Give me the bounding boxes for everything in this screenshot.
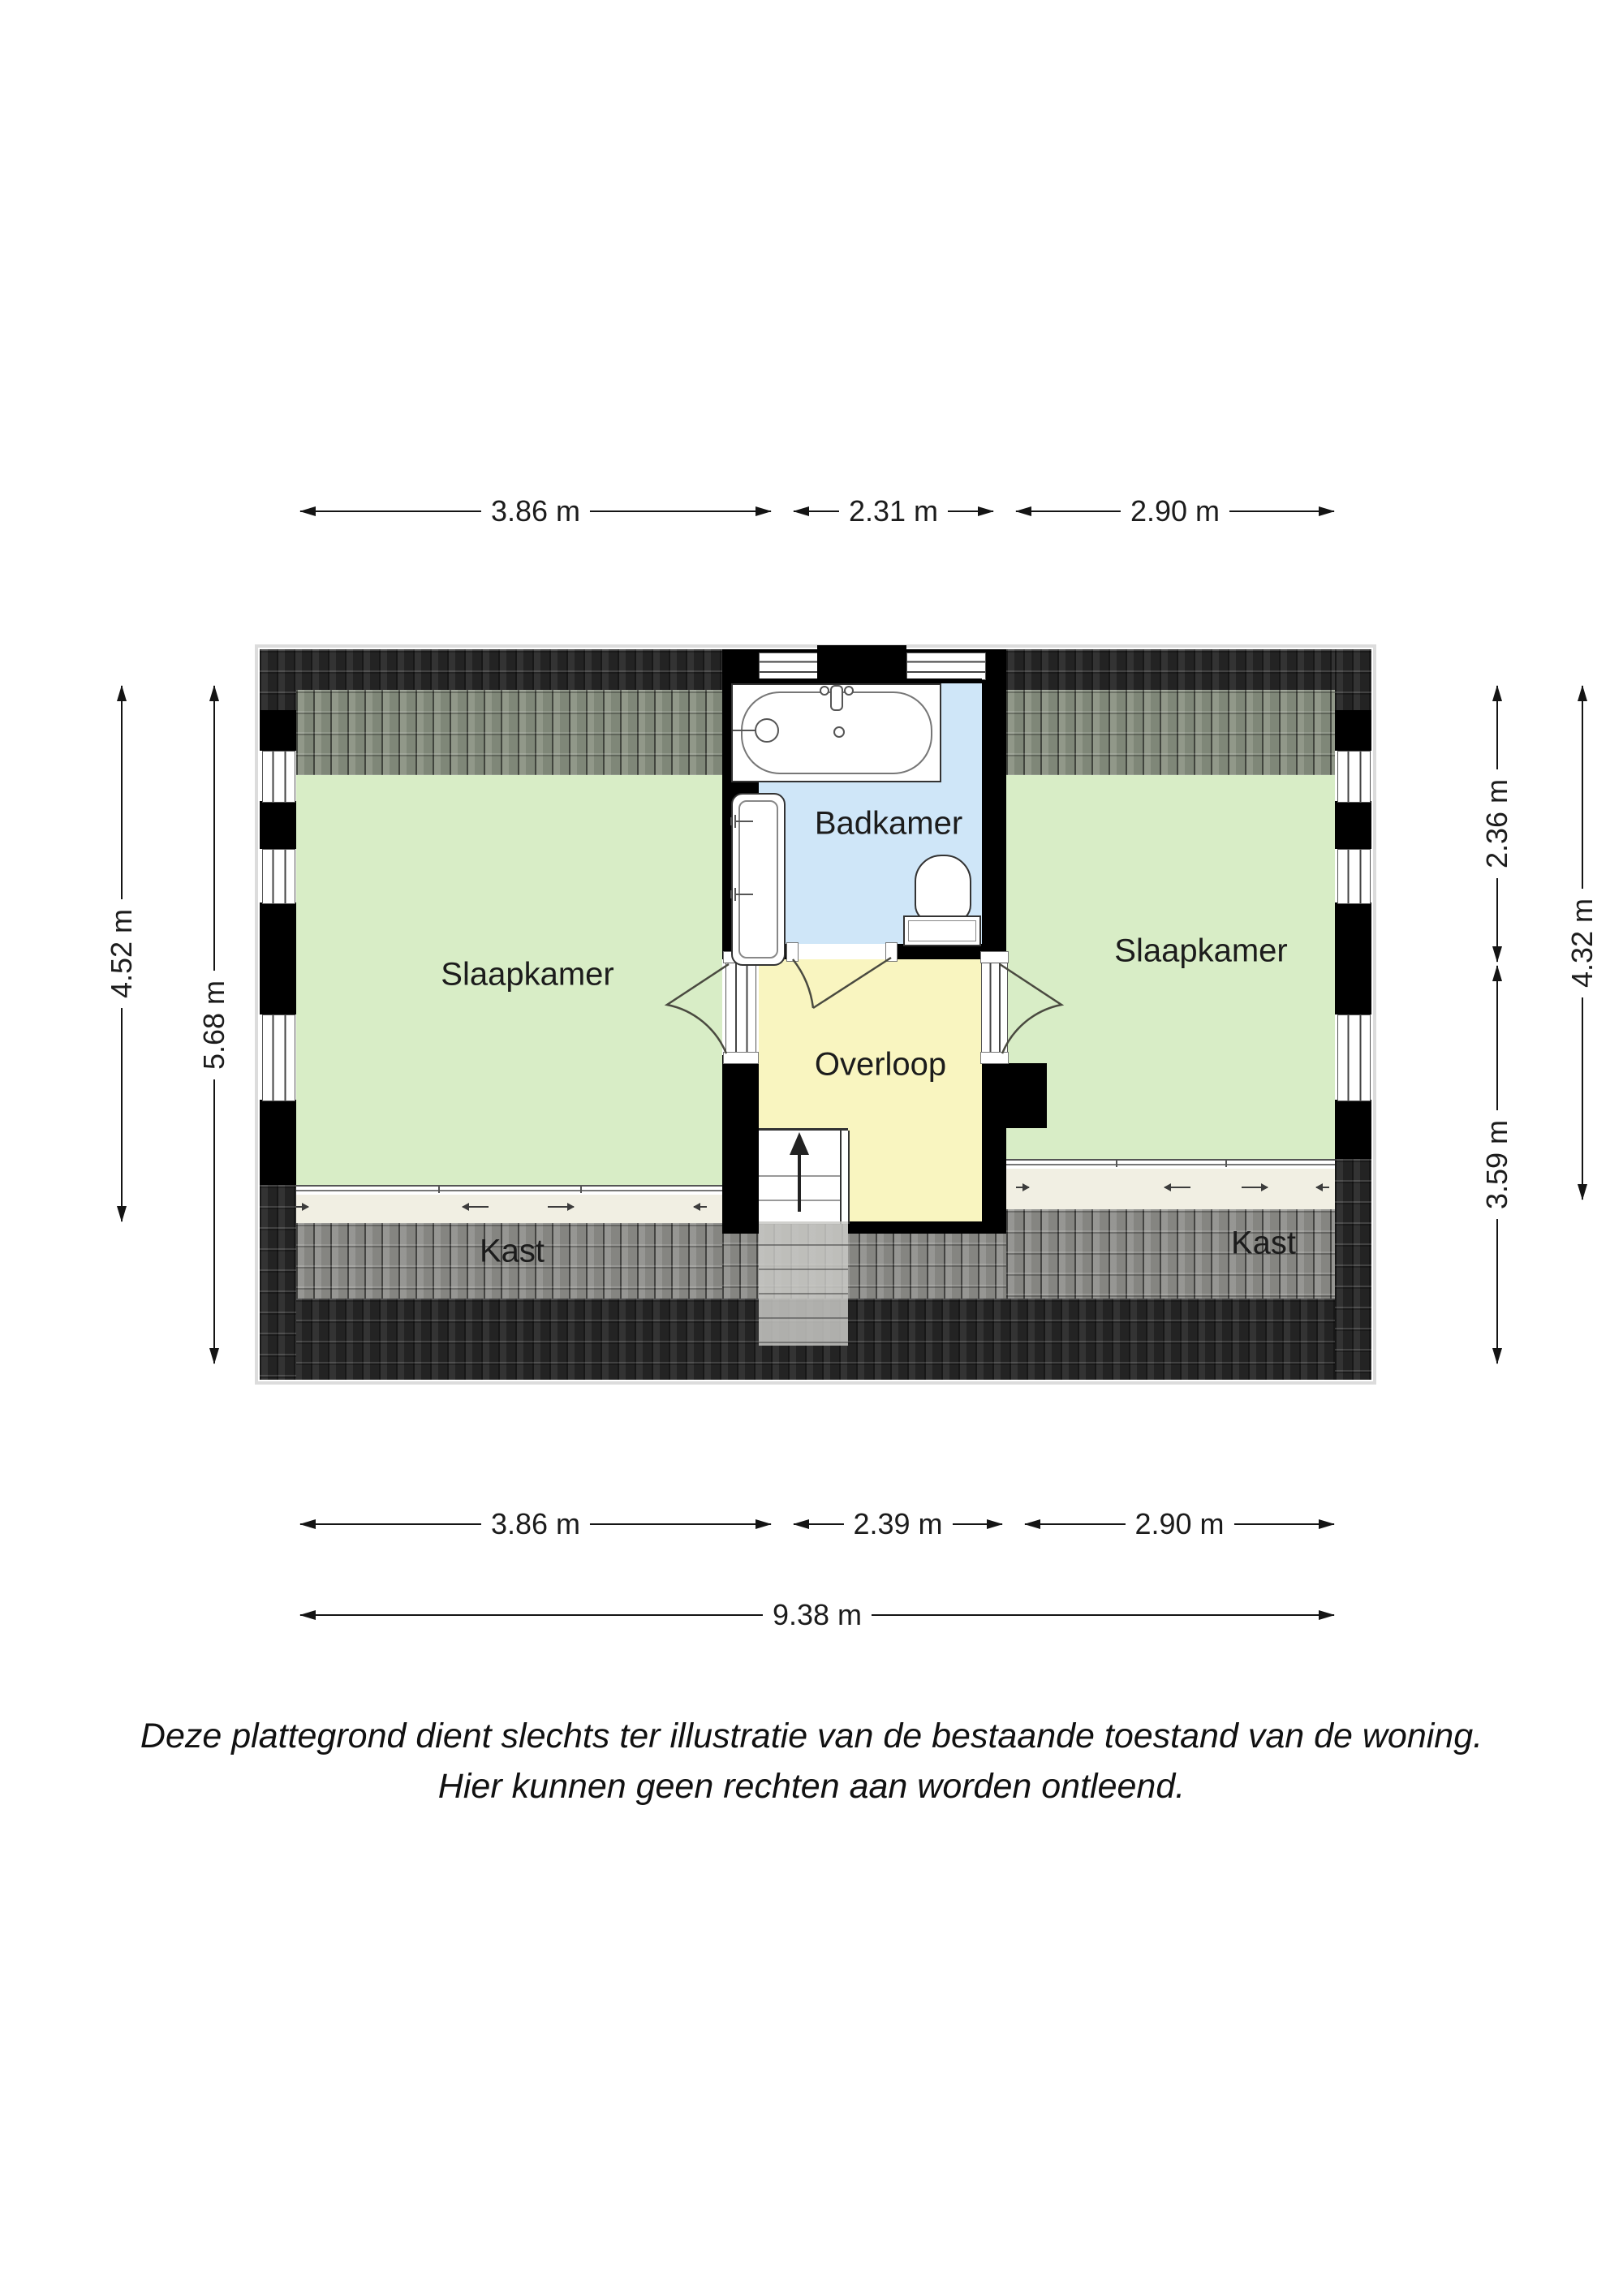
bathtub-plug [834,727,844,737]
dimension-value: 2.31 m [839,494,948,528]
dimension-value: 2.90 m [1121,494,1229,528]
dimension-value: 3.86 m [481,1507,590,1541]
bathtub-tap-handle [845,687,853,695]
dimension-value: 5.68 m [197,970,231,1079]
sink-faucet-icon [731,888,753,901]
sink-faucet-icon [731,815,753,828]
room-label-bedroom-left: Slaapkamer [441,957,613,993]
disclaimer-line-2: Hier kunnen geen rechten aan worden ontl… [0,1761,1623,1811]
room-label-closet-right: Kast [1231,1226,1296,1262]
room-label-landing: Overloop [815,1047,946,1083]
room-label-bathroom: Badkamer [815,806,962,842]
dimension-value: 2.90 m [1125,1507,1233,1541]
bathtub-faucet [831,686,842,710]
bathtub-drain [756,719,778,742]
disclaimer-line-1: Deze plattegrond dient slechts ter illus… [0,1711,1623,1761]
room-label-closet-left: Kast [480,1234,545,1270]
door-swing-bedroom-left [667,964,729,1053]
bathtub-tap-handle [820,687,829,695]
dimension-value: 2.36 m [1480,769,1514,878]
door-swing-bathroom [793,958,891,1008]
floorplan-page: Slaapkamer Badkamer Slaapkamer Overloop … [0,0,1623,2296]
dimension-value: 4.52 m [105,899,139,1008]
dimension-value: 4.32 m [1565,888,1599,997]
room-label-bedroom-right: Slaapkamer [1114,933,1287,970]
dimension-value: 3.86 m [481,494,590,528]
door-swing-bedroom-right [1000,964,1061,1053]
dimension-value: 9.38 m [763,1598,872,1632]
dimension-value: 2.39 m [843,1507,952,1541]
disclaimer-text: Deze plattegrond dient slechts ter illus… [0,1711,1623,1811]
dimension-value: 3.59 m [1480,1110,1514,1219]
door-swing-overlay [0,0,1623,2296]
